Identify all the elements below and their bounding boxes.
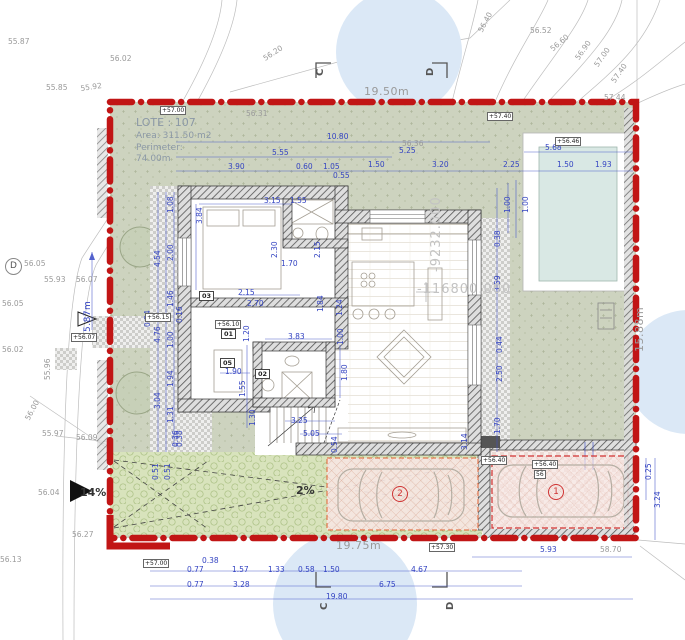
floor-plan-viewport: LOTE : 107 Area: 311.50 m2 Perimeter: 74… — [0, 0, 685, 640]
lot-perimeter-label: Perimeter: — [136, 143, 211, 155]
site-plan-canvas — [0, 0, 685, 640]
lot-area-text: Area: 311.50 m2 — [136, 131, 211, 143]
lot-number: LOTE : 107 — [136, 116, 211, 129]
parking-spaces — [327, 456, 628, 530]
pool — [523, 133, 631, 291]
lot-info: LOTE : 107 Area: 311.50 m2 Perimeter: 74… — [136, 116, 211, 166]
lot-perimeter-value: 74.00m — [136, 154, 211, 166]
entry-arrow — [70, 480, 92, 502]
